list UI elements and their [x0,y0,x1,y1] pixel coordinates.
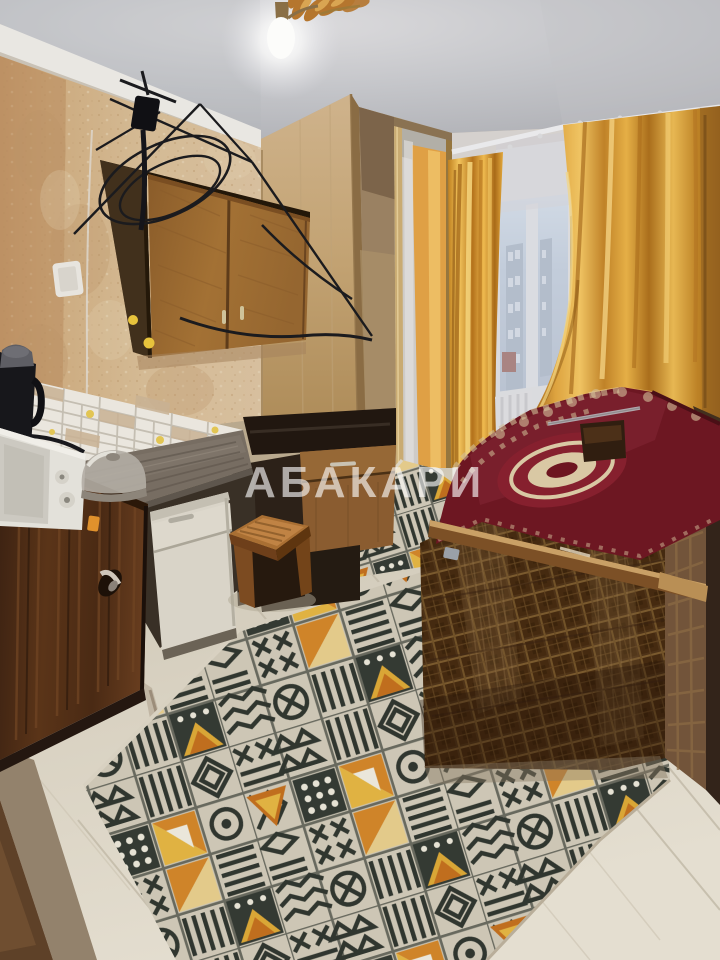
svg-text:АБАКАРИ: АБАКАРИ [244,458,485,507]
